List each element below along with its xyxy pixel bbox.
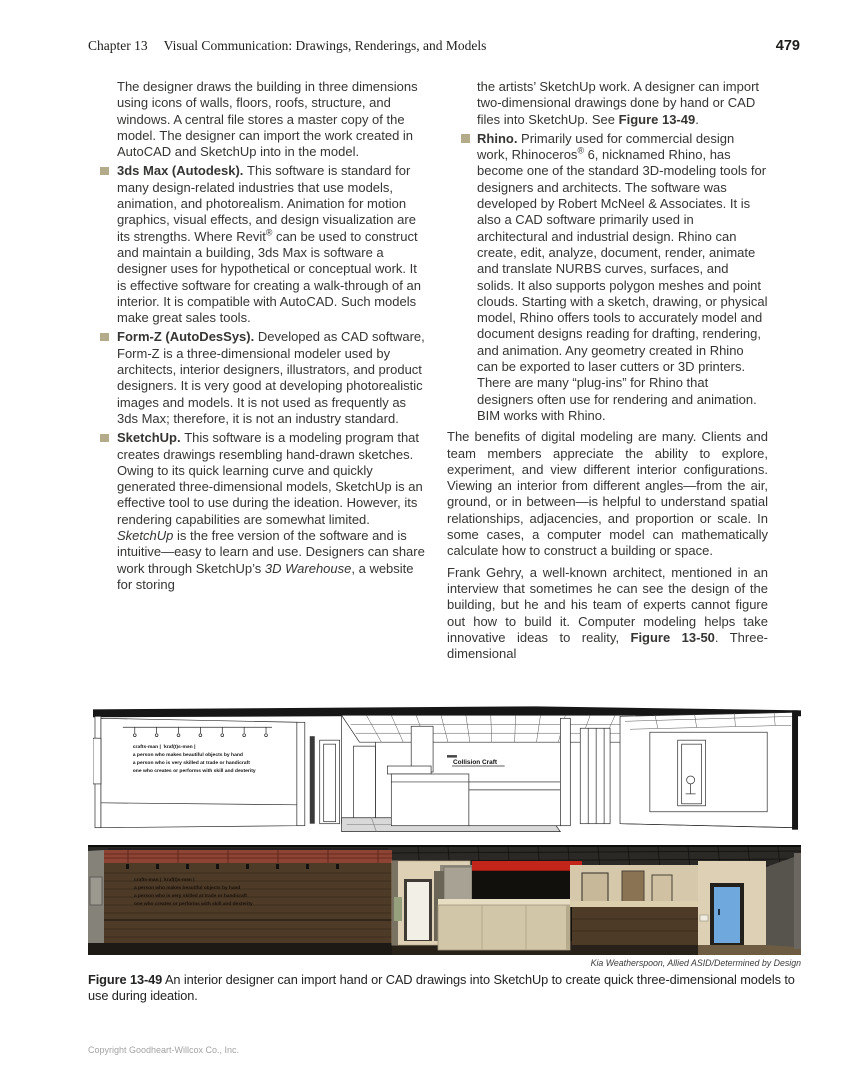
software-list-left: 3ds Max (Autodesk). This software is sta… — [100, 163, 426, 593]
sketchup-linework-image: crafts-man | ˈkraf(t)s-mən | a person wh… — [93, 706, 801, 837]
intro-paragraph: The designer draws the building in three… — [117, 79, 426, 160]
square-bullet-marker — [100, 333, 109, 342]
list-item-text: SketchUp. This software is a modeling pr… — [117, 430, 425, 592]
list-item-3ds-max: 3ds Max (Autodesk). This software is sta… — [100, 163, 426, 326]
figure-credit: Kia Weatherspoon, Allied ASID/Determined… — [88, 958, 801, 968]
copyright-notice: Copyright Goodheart-Willcox Co., Inc. — [88, 1045, 239, 1055]
list-item-text: 3ds Max (Autodesk). This software is sta… — [117, 163, 421, 325]
left-column: The designer draws the building in three… — [100, 79, 426, 593]
svg-text:one who creates or performs wi: one who creates or performs with skill a… — [134, 901, 253, 907]
right-column: the artists’ SketchUp work. A designer c… — [447, 79, 768, 662]
software-list-right: Rhino. Primarily used for commercial des… — [447, 131, 768, 424]
chapter-title: Visual Communication: Drawings, Renderin… — [164, 38, 487, 54]
square-bullet-marker — [100, 434, 109, 443]
list-item-text: Rhino. Primarily used for commercial des… — [477, 131, 767, 423]
svg-text:a person who is very skilled a: a person who is very skilled at trade or… — [133, 760, 250, 766]
body-paragraph-benefits: The benefits of digital modeling are man… — [447, 429, 768, 559]
figure-bottom-panel: crafts-man | ˈkraf(t)s-mən | a person wh… — [88, 845, 801, 955]
svg-text:crafts-man | ˈkraf(t)s-mən |: crafts-man | ˈkraf(t)s-mən | — [134, 877, 195, 883]
svg-text:one who creates or performs wi: one who creates or performs with skill a… — [133, 768, 256, 774]
page-number: 479 — [776, 38, 800, 54]
svg-text:a person who is very skilled a: a person who is very skilled at trade or… — [134, 893, 247, 899]
svg-text:crafts-man | ˈkraf(t)s-mən |: crafts-man | ˈkraf(t)s-mən | — [133, 744, 196, 750]
square-bullet-marker — [461, 134, 470, 143]
continuation-paragraph: the artists’ SketchUp work. A designer c… — [477, 79, 768, 128]
chapter-heading: Chapter 13 — [88, 38, 148, 54]
caption-text: An interior designer can import hand or … — [88, 972, 795, 1003]
sketchup-render-image: crafts-man | ˈkraf(t)s-mən | a person wh… — [88, 845, 801, 955]
list-item-text: Form-Z (AutoDesSys). Developed as CAD so… — [117, 329, 425, 425]
svg-text:a person who makes beautiful o: a person who makes beautiful objects by … — [134, 885, 240, 891]
collision-craft-sign: Collision Craft — [453, 759, 498, 766]
list-item-rhino: Rhino. Primarily used for commercial des… — [447, 131, 768, 424]
figure-top-panel: crafts-man | ˈkraf(t)s-mən | a person wh… — [93, 706, 801, 837]
svg-text:a person who makes beautiful o: a person who makes beautiful objects by … — [133, 752, 243, 758]
figure-caption: Figure 13-49 An interior designer can im… — [88, 972, 801, 1004]
list-item-sketchup: SketchUp. This software is a modeling pr… — [100, 430, 426, 593]
page-header: Chapter 13 Visual Communication: Drawing… — [88, 38, 800, 54]
caption-label: Figure 13-49 — [88, 972, 162, 987]
square-bullet-marker — [100, 167, 109, 176]
textbook-page: { "header": { "chapter": "Chapter 13", "… — [0, 0, 849, 1087]
body-paragraph-gehry: Frank Gehry, a well-known architect, men… — [447, 565, 768, 663]
list-item-form-z: Form-Z (AutoDesSys). Developed as CAD so… — [100, 329, 426, 427]
